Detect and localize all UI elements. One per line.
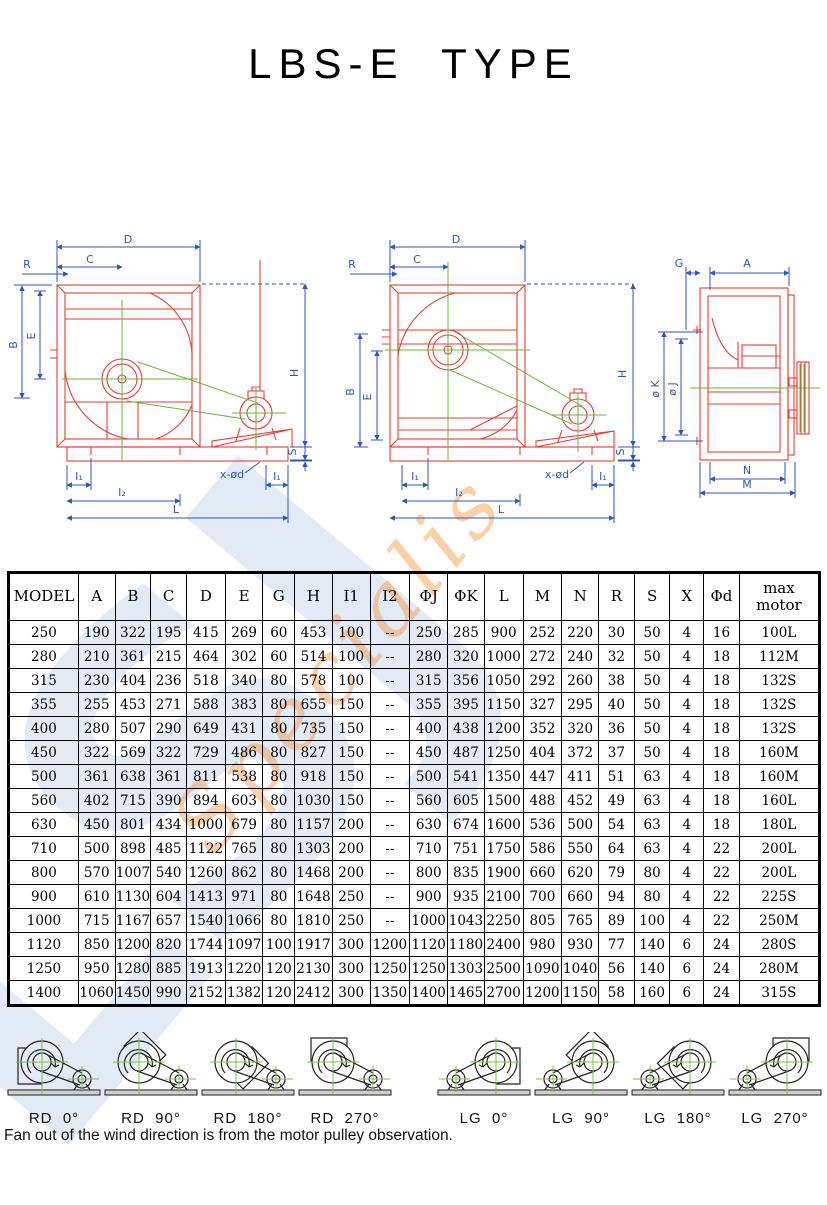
table-cell: 1200 xyxy=(370,933,410,957)
table-cell: 800 xyxy=(9,861,78,885)
table-cell: 18 xyxy=(704,645,740,669)
table-cell: 1450 xyxy=(115,981,151,1006)
table-cell: 37 xyxy=(599,741,635,765)
table-cell: 215 xyxy=(151,645,187,669)
table-cell: 280 xyxy=(410,645,448,669)
table-cell: 453 xyxy=(295,621,333,645)
table-cell: 1000 xyxy=(9,909,78,933)
end-view-drawing: G A ø K ø J N M xyxy=(649,257,820,498)
table-cell: 94 xyxy=(599,885,635,909)
table-cell: 50 xyxy=(634,693,670,717)
table-cell: 190 xyxy=(78,621,115,645)
diagram-label: RD 270° xyxy=(297,1110,393,1127)
table-cell: 570 xyxy=(78,861,115,885)
dim-label-I1b: I₁ xyxy=(273,470,281,483)
dim-label-xod: x-ød xyxy=(220,468,244,481)
table-cell: 1200 xyxy=(523,981,562,1006)
table-cell: 22 xyxy=(704,837,740,861)
dim-label-E: E xyxy=(25,332,38,339)
diagram-label: RD 90° xyxy=(103,1110,199,1127)
table-cell: 4 xyxy=(670,621,704,645)
table-cell: 18 xyxy=(704,693,740,717)
table-cell: 4 xyxy=(670,741,704,765)
table-header-row: MODELABCDEGHI1I2ΦJΦKLMNRSXΦdmax motor xyxy=(9,573,819,621)
table-cell: 569 xyxy=(115,741,151,765)
ground-line xyxy=(535,1090,627,1095)
table-cell: 295 xyxy=(562,693,599,717)
table-cell: 464 xyxy=(186,645,225,669)
table-cell: 415 xyxy=(186,621,225,645)
table-cell: 320 xyxy=(448,645,485,669)
table-cell: 1468 xyxy=(295,861,333,885)
table-cell: 6 xyxy=(670,957,704,981)
dimension-table: MODELABCDEGHI1I2ΦJΦKLMNRSXΦdmax motor250… xyxy=(8,572,820,1006)
table-cell: 1280 xyxy=(115,957,151,981)
table-cell: 1750 xyxy=(484,837,523,861)
table-cell: 132S xyxy=(739,693,819,717)
table-cell: 1465 xyxy=(448,981,485,1006)
table-header-cell: R xyxy=(599,573,635,621)
table-cell: 252 xyxy=(523,621,562,645)
table-cell: 450 xyxy=(9,741,78,765)
table-cell: 638 xyxy=(115,765,151,789)
table-cell: 100 xyxy=(263,933,295,957)
table-cell: 361 xyxy=(115,645,151,669)
table-cell: 655 xyxy=(295,693,333,717)
table-header-cell: G xyxy=(263,573,295,621)
table-header-cell: E xyxy=(225,573,263,621)
dim-label-L: L xyxy=(498,503,505,516)
table-cell: 507 xyxy=(115,717,151,741)
table-cell: 340 xyxy=(225,669,263,693)
table-cell: 1180 xyxy=(448,933,485,957)
orientation-diagrams: RD 0°RD 90°RD 180°RD 270°LG 0°LG 90°LG 1… xyxy=(6,1032,824,1127)
table-cell: 30 xyxy=(599,621,635,645)
table-cell: 63 xyxy=(634,789,670,813)
table-header-cell: M xyxy=(523,573,562,621)
table-cell: 80 xyxy=(263,885,295,909)
fan-orientation-diagram: RD 180° xyxy=(200,1032,296,1127)
table-cell: 356 xyxy=(448,669,485,693)
dim-label-E: E xyxy=(361,393,374,400)
table-cell: 674 xyxy=(448,813,485,837)
table-cell: 160L xyxy=(739,789,819,813)
table-cell: 63 xyxy=(634,813,670,837)
table-cell: 450 xyxy=(410,741,448,765)
ground-line xyxy=(105,1090,197,1095)
table-row: 1400106014509902152138212024123001350140… xyxy=(9,981,819,1006)
dim-label-R: R xyxy=(348,258,356,271)
table-cell: -- xyxy=(370,861,410,885)
table-cell: 285 xyxy=(448,621,485,645)
table-header-cell: ΦK xyxy=(448,573,485,621)
table-cell: 50 xyxy=(634,621,670,645)
table-cell: 560 xyxy=(410,789,448,813)
table-cell: 1090 xyxy=(523,957,562,981)
table-cell: 49 xyxy=(599,789,635,813)
table-cell: 150 xyxy=(332,789,370,813)
table-cell: 700 xyxy=(523,885,562,909)
table-row: 6304508014341000679801157200--6306741600… xyxy=(9,813,819,837)
table-cell: 140 xyxy=(634,933,670,957)
table-cell: 80 xyxy=(263,837,295,861)
table-cell: 80 xyxy=(263,813,295,837)
table-cell: 811 xyxy=(186,765,225,789)
footer-note: Fan out of the wind direction is from th… xyxy=(4,1127,453,1145)
scroll-crosshair xyxy=(16,1038,68,1094)
fan-diagram-svg xyxy=(630,1032,726,1102)
table-row: 560402715390894603801030150--56060515004… xyxy=(9,789,819,813)
table-cell: 140 xyxy=(634,957,670,981)
table-cell: 550 xyxy=(562,837,599,861)
table-cell: 578 xyxy=(295,669,333,693)
table-header-cell: A xyxy=(78,573,115,621)
table-row: 50036163836181153880918150--500541135044… xyxy=(9,765,819,789)
page: LSJ Specialis LBS-E TYPE xyxy=(0,0,827,1205)
table-cell: 150 xyxy=(332,693,370,717)
table-cell: 1303 xyxy=(448,957,485,981)
fan-diagram-svg xyxy=(297,1032,393,1102)
table-cell: 322 xyxy=(151,741,187,765)
table-cell: 715 xyxy=(115,789,151,813)
table-cell: 2100 xyxy=(484,885,523,909)
table-cell: 1917 xyxy=(295,933,333,957)
table-cell: 1260 xyxy=(186,861,225,885)
ground-line xyxy=(729,1090,821,1095)
table-cell: 604 xyxy=(151,885,187,909)
table-cell: 210 xyxy=(78,645,115,669)
table-cell: 438 xyxy=(448,717,485,741)
table-cell: 160 xyxy=(634,981,670,1006)
fan-orientation-diagram: RD 90° xyxy=(103,1032,199,1127)
table-cell: 315S xyxy=(739,981,819,1006)
table-cell: 18 xyxy=(704,717,740,741)
table-cell: 250 xyxy=(332,909,370,933)
table-cell: 1066 xyxy=(225,909,263,933)
fan-orientation-diagram: RD 270° xyxy=(297,1032,393,1127)
fan-diagram-svg xyxy=(200,1032,296,1102)
table-cell: 1007 xyxy=(115,861,151,885)
table-cell: 679 xyxy=(225,813,263,837)
table-cell: 132S xyxy=(739,717,819,741)
table-cell: 58 xyxy=(599,981,635,1006)
dim-label-I2: I₂ xyxy=(455,486,463,499)
table-cell: 290 xyxy=(151,717,187,741)
table-cell: 715 xyxy=(78,909,115,933)
table-row: 1000715116765715401066801810250--1000104… xyxy=(9,909,819,933)
table-header-cell: Φd xyxy=(704,573,740,621)
dim-label-G: G xyxy=(675,257,684,270)
table-cell: 1303 xyxy=(295,837,333,861)
table-cell: 2412 xyxy=(295,981,333,1006)
table-cell: 271 xyxy=(151,693,187,717)
table-cell: 300 xyxy=(332,981,370,1006)
fan-diagram-svg xyxy=(6,1032,102,1102)
fan-diagram-svg xyxy=(103,1032,199,1102)
table-cell: 22 xyxy=(704,861,740,885)
dim-label-S: S xyxy=(286,448,299,455)
table-cell: 22 xyxy=(704,885,740,909)
table-header-cell: D xyxy=(186,573,225,621)
table-row: 25019032219541526960453100--250285900252… xyxy=(9,621,819,645)
table-cell: 452 xyxy=(562,789,599,813)
dim-label-B: B xyxy=(344,388,357,396)
table-cell: 250M xyxy=(739,909,819,933)
table-cell: 300 xyxy=(332,957,370,981)
table-cell: 112M xyxy=(739,645,819,669)
dim-label-H: H xyxy=(288,369,301,377)
table-cell: 250 xyxy=(9,621,78,645)
table-cell: 225S xyxy=(739,885,819,909)
table-cell: 2500 xyxy=(484,957,523,981)
table-cell: 536 xyxy=(523,813,562,837)
table-cell: 485 xyxy=(151,837,187,861)
table-cell: 541 xyxy=(448,765,485,789)
table-cell: 80 xyxy=(263,765,295,789)
table-cell: 630 xyxy=(9,813,78,837)
table-cell: 500 xyxy=(562,813,599,837)
table-cell: 250 xyxy=(410,621,448,645)
table-cell: 1150 xyxy=(484,693,523,717)
scroll-crosshair xyxy=(664,1038,716,1094)
scroll-crosshair xyxy=(761,1038,813,1094)
table-cell: 80 xyxy=(263,789,295,813)
table-cell: 240 xyxy=(562,645,599,669)
table-cell: 900 xyxy=(410,885,448,909)
table-cell: 1200 xyxy=(115,933,151,957)
table-cell: 372 xyxy=(562,741,599,765)
table-cell: 1413 xyxy=(186,885,225,909)
table-header-cell: L xyxy=(484,573,523,621)
table-cell: 1382 xyxy=(225,981,263,1006)
table-cell: 538 xyxy=(225,765,263,789)
table-cell: 930 xyxy=(562,933,599,957)
table-cell: -- xyxy=(370,765,410,789)
table-cell: 630 xyxy=(410,813,448,837)
table-cell: 50 xyxy=(634,669,670,693)
table-cell: 24 xyxy=(704,957,740,981)
table-cell: 1000 xyxy=(410,909,448,933)
dim-label-B: B xyxy=(7,341,20,349)
table-cell: 77 xyxy=(599,933,635,957)
table-cell: 100 xyxy=(332,621,370,645)
table-cell: 453 xyxy=(115,693,151,717)
table-cell: 1030 xyxy=(295,789,333,813)
table-cell: 1040 xyxy=(562,957,599,981)
table-cell: 160M xyxy=(739,741,819,765)
table-cell: 735 xyxy=(295,717,333,741)
table-cell: 40 xyxy=(599,693,635,717)
table-cell: 450 xyxy=(78,813,115,837)
table-header-cell: X xyxy=(670,573,704,621)
table-cell: 1250 xyxy=(370,957,410,981)
table-cell: 64 xyxy=(599,837,635,861)
fan-orientation-diagram: LG 0° xyxy=(436,1032,532,1127)
dim-label-N: N xyxy=(743,464,751,477)
table-cell: 132S xyxy=(739,669,819,693)
table-cell: 660 xyxy=(562,885,599,909)
table-cell: 500 xyxy=(9,765,78,789)
dim-label-L: L xyxy=(173,503,180,516)
table-cell: 660 xyxy=(523,861,562,885)
dim-label-I1b: I₁ xyxy=(599,470,607,483)
table-cell: 729 xyxy=(186,741,225,765)
table-cell: 4 xyxy=(670,669,704,693)
table-row: 80057010075401260862801468200--800835190… xyxy=(9,861,819,885)
table-row: 45032256932272948680827150--450487125040… xyxy=(9,741,819,765)
table-cell: 500 xyxy=(78,837,115,861)
table-cell: 1200 xyxy=(484,717,523,741)
table-cell: 250 xyxy=(332,885,370,909)
table-header-cell: max motor xyxy=(739,573,819,621)
table-cell: 1122 xyxy=(186,837,225,861)
table-cell: -- xyxy=(370,693,410,717)
table-cell: -- xyxy=(370,741,410,765)
table-cell: 431 xyxy=(225,717,263,741)
table-cell: 1350 xyxy=(484,765,523,789)
table-cell: 269 xyxy=(225,621,263,645)
ground-line xyxy=(632,1090,724,1095)
table-cell: 230 xyxy=(78,669,115,693)
table-cell: 1600 xyxy=(484,813,523,837)
table-cell: 60 xyxy=(263,645,295,669)
diagram-label: LG 90° xyxy=(533,1110,629,1127)
table-cell: 514 xyxy=(295,645,333,669)
dim-label-I1: I₁ xyxy=(411,470,419,483)
table-cell: 200 xyxy=(332,861,370,885)
table-cell: 361 xyxy=(78,765,115,789)
table-cell: 16 xyxy=(704,621,740,645)
table-cell: 195 xyxy=(151,621,187,645)
table-cell: 390 xyxy=(151,789,187,813)
scroll-crosshair xyxy=(210,1038,262,1094)
table-cell: 80 xyxy=(263,669,295,693)
table-cell: 560 xyxy=(9,789,78,813)
scroll-crosshair xyxy=(470,1038,522,1094)
table-cell: 322 xyxy=(115,621,151,645)
table-cell: 1250 xyxy=(484,741,523,765)
fan-orientation-diagram: LG 90° xyxy=(533,1032,629,1127)
table-cell: 402 xyxy=(78,789,115,813)
table-cell: 603 xyxy=(225,789,263,813)
table-cell: 260 xyxy=(562,669,599,693)
table-cell: -- xyxy=(370,813,410,837)
table-cell: 1540 xyxy=(186,909,225,933)
table-cell: 1500 xyxy=(484,789,523,813)
diagram-label: LG 180° xyxy=(630,1110,726,1127)
dim-label-A: A xyxy=(743,257,751,270)
table-cell: 200 xyxy=(332,837,370,861)
table-cell: 980 xyxy=(523,933,562,957)
table-cell: 50 xyxy=(634,717,670,741)
table-cell: 1000 xyxy=(484,645,523,669)
table-cell: 900 xyxy=(484,621,523,645)
table-header-cell: I1 xyxy=(332,573,370,621)
table-cell: 18 xyxy=(704,789,740,813)
table-cell: 22 xyxy=(704,909,740,933)
dim-label-I1: I₁ xyxy=(75,470,83,483)
table-cell: 54 xyxy=(599,813,635,837)
table-cell: 404 xyxy=(523,741,562,765)
table-cell: 24 xyxy=(704,933,740,957)
ground-line xyxy=(8,1090,100,1095)
table-cell: 827 xyxy=(295,741,333,765)
table-cell: 150 xyxy=(332,741,370,765)
table-cell: 79 xyxy=(599,861,635,885)
table-cell: 80 xyxy=(263,693,295,717)
table-cell: 1167 xyxy=(115,909,151,933)
table-cell: 404 xyxy=(115,669,151,693)
table-cell: 540 xyxy=(151,861,187,885)
table-cell: 1913 xyxy=(186,957,225,981)
table-cell: 80 xyxy=(263,861,295,885)
table-cell: 1060 xyxy=(78,981,115,1006)
fan-orientation-diagram: LG 180° xyxy=(630,1032,726,1127)
table-cell: 500 xyxy=(410,765,448,789)
table-cell: 292 xyxy=(523,669,562,693)
table-cell: 1744 xyxy=(186,933,225,957)
table-cell: 327 xyxy=(523,693,562,717)
table-cell: 80 xyxy=(263,717,295,741)
table-cell: 1120 xyxy=(410,933,448,957)
table-cell: 586 xyxy=(523,837,562,861)
table-cell: 894 xyxy=(186,789,225,813)
table-cell: 120 xyxy=(263,957,295,981)
table-cell: 1050 xyxy=(484,669,523,693)
table-cell: 1000 xyxy=(186,813,225,837)
table-cell: 100 xyxy=(634,909,670,933)
table-cell: 765 xyxy=(562,909,599,933)
table-cell: 1648 xyxy=(295,885,333,909)
table-cell: 100 xyxy=(332,669,370,693)
table-cell: 1120 xyxy=(9,933,78,957)
dim-label-H: H xyxy=(616,370,629,378)
dim-label-D: D xyxy=(124,233,132,246)
table-cell: 1400 xyxy=(9,981,78,1006)
table-cell: 120 xyxy=(263,981,295,1006)
table-cell: 765 xyxy=(225,837,263,861)
table-cell: 272 xyxy=(523,645,562,669)
fan-diagram-svg xyxy=(436,1032,532,1102)
table-cell: 620 xyxy=(562,861,599,885)
table-cell: 150 xyxy=(332,765,370,789)
table-cell: 36 xyxy=(599,717,635,741)
table-cell: 32 xyxy=(599,645,635,669)
table-cell: 710 xyxy=(9,837,78,861)
table-cell: 280S xyxy=(739,933,819,957)
table-cell: 820 xyxy=(151,933,187,957)
table-cell: 4 xyxy=(670,861,704,885)
table-cell: 80 xyxy=(263,741,295,765)
table-cell: 352 xyxy=(523,717,562,741)
table-cell: -- xyxy=(370,789,410,813)
table-cell: 862 xyxy=(225,861,263,885)
table-cell: 518 xyxy=(186,669,225,693)
table-cell: 657 xyxy=(151,909,187,933)
table-row: 1250950128088519131220120213030012501250… xyxy=(9,957,819,981)
table-cell: 50 xyxy=(634,741,670,765)
table-row: 1120850120082017441097100191730012001120… xyxy=(9,933,819,957)
table-cell: 835 xyxy=(448,861,485,885)
table-cell: 315 xyxy=(9,669,78,693)
table-cell: 1157 xyxy=(295,813,333,837)
table-cell: 300 xyxy=(332,933,370,957)
fan-diagram-svg xyxy=(533,1032,629,1102)
table-cell: -- xyxy=(370,621,410,645)
table-cell: 395 xyxy=(448,693,485,717)
table-cell: 1097 xyxy=(225,933,263,957)
table-cell: 322 xyxy=(78,741,115,765)
